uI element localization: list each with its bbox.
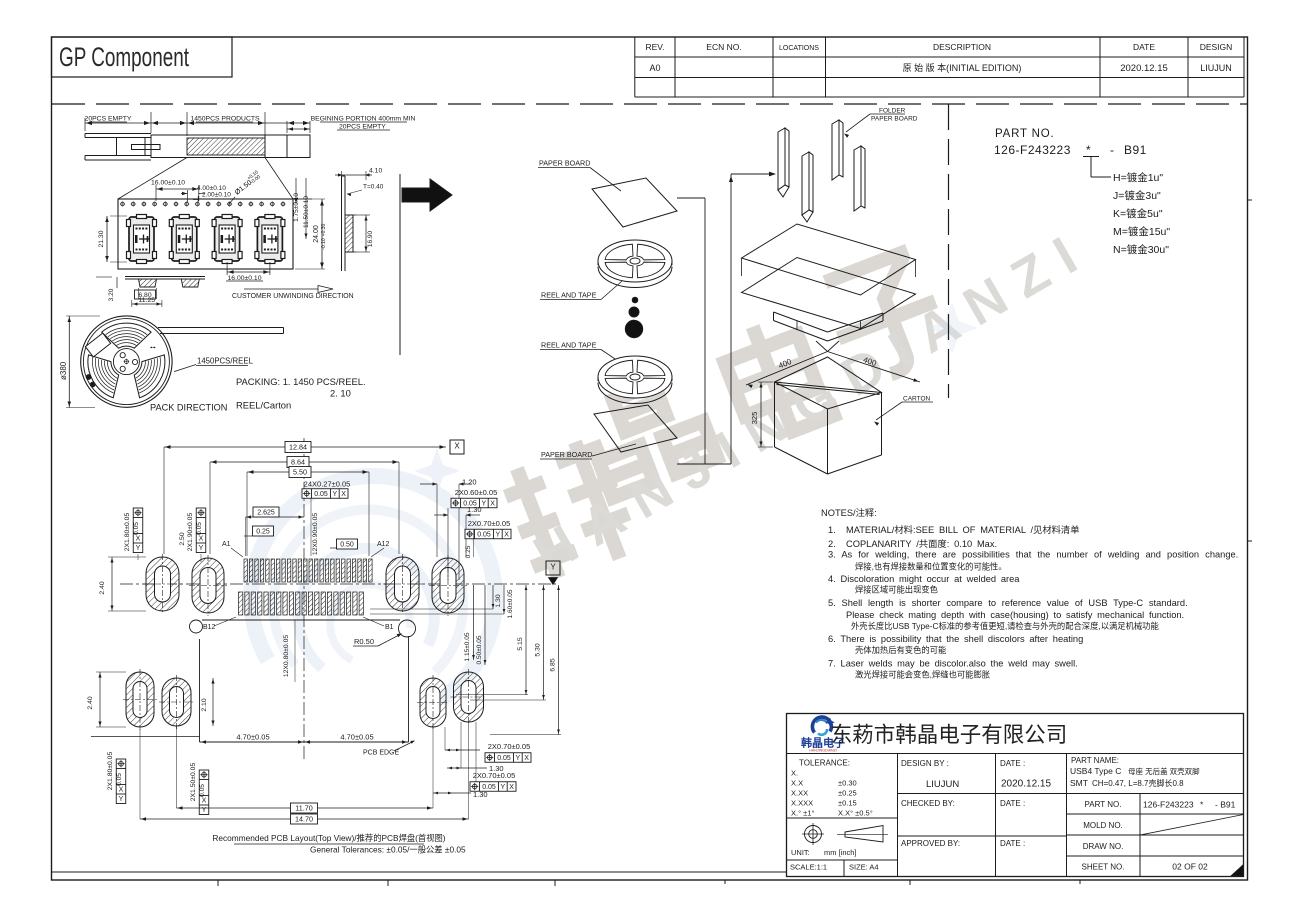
svg-text:0.05: 0.05 [133,522,140,535]
svg-text:2X1.50±0.05: 2X1.50±0.05 [190,763,197,802]
svg-text:126-F243223: 126-F243223 [1143,800,1194,810]
svg-text:SMT: SMT [1070,778,1088,788]
svg-text:*: * [1086,143,1091,157]
svg-text:X.: X. [791,769,798,778]
svg-text:2X1.90±0.05: 2X1.90±0.05 [187,513,194,552]
svg-text:REEL AND TAPE: REEL AND TAPE [541,341,597,350]
svg-text:CARTON: CARTON [903,396,931,403]
svg-text:外壳长度比USB Type-C标准的参考值更短,请检查与外壳: 外壳长度比USB Type-C标准的参考值更短,请检查与外壳的配合深度,以满足机… [851,621,1159,631]
svg-text:MOLD NO.: MOLD NO. [1083,821,1123,830]
svg-text:2020.12.15: 2020.12.15 [1001,779,1051,790]
svg-text:焊接,也有焊接数量和位置变化的可能性。: 焊接,也有焊接数量和位置变化的可能性。 [855,562,1007,572]
svg-text:325: 325 [750,412,759,425]
svg-text:-0.10: -0.10 [321,238,327,250]
svg-text:3. As for welding, there are p: 3. As for welding, there are possibiliti… [828,550,1238,560]
svg-text:X: X [199,536,204,543]
svg-text:4. Discoloration might occur a: 4. Discoloration might occur at welded a… [828,574,1020,584]
svg-text:6.85: 6.85 [550,658,557,671]
svg-text:X.° ±1°: X.° ±1° [791,809,814,818]
svg-text:0.05: 0.05 [199,784,206,797]
svg-text:6. There is possibility that t: 6. There is possibility that the shell d… [828,634,1083,644]
svg-text:5.30: 5.30 [535,643,542,656]
svg-text:12X0.90±0.05: 12X0.90±0.05 [312,513,319,556]
svg-text:126-F243223: 126-F243223 [994,143,1071,157]
svg-text:Y: Y [136,545,141,552]
svg-text:2.625: 2.625 [257,510,275,517]
svg-text:0.05: 0.05 [314,491,328,498]
svg-text:12.84: 12.84 [289,443,307,452]
svg-text:PART NO.: PART NO. [1085,800,1122,809]
svg-text:Y: Y [550,563,556,572]
svg-text:SHEET NO.: SHEET NO. [1082,863,1125,872]
svg-text:LIUJUN: LIUJUN [1200,63,1232,73]
svg-text:Y: Y [495,532,500,539]
svg-text:±0.30: ±0.30 [838,779,857,788]
svg-text:0.05: 0.05 [477,532,491,539]
svg-text:壳体加热后有变色的可能: 壳体加热后有变色的可能 [855,645,946,655]
svg-text:SIZE: A4: SIZE: A4 [849,863,879,872]
svg-text:X: X [119,787,124,794]
svg-text:X: X [524,755,529,762]
svg-text:1450PCS/REEL: 1450PCS/REEL [197,357,254,366]
svg-text:APPROVED BY:: APPROVED BY: [901,839,960,848]
svg-text:Y: Y [515,755,520,762]
svg-text:DESIGN BY :: DESIGN BY : [901,759,949,768]
svg-text:ECN NO.: ECN NO. [706,42,741,52]
svg-text:激光焊接可能会变色,焊缝也可能膨胀: 激光焊接可能会变色,焊缝也可能膨胀 [855,670,990,680]
svg-text:4.70±0.05: 4.70±0.05 [236,733,269,742]
svg-text:2.50: 2.50 [179,532,186,545]
svg-text:Recommended PCB Layout(Top: Recommended PCB Layout(Top View)/推荐的PCB焊… [212,833,445,843]
svg-text:PAPER BOARD: PAPER BOARD [871,116,918,123]
svg-text:11.25: 11.25 [139,297,156,304]
svg-text:FOLDER: FOLDER [879,108,906,115]
svg-text:A1: A1 [222,541,231,548]
svg-text:1.20: 1.20 [462,478,477,487]
svg-text:Please check mating depth with: Please check mating depth with case(hous… [846,610,1184,620]
svg-text:X: X [490,501,495,508]
svg-text:12X0.80±0.05: 12X0.80±0.05 [283,635,290,678]
svg-text:0.05: 0.05 [497,755,511,762]
svg-text:14.70: 14.70 [295,815,313,824]
svg-text:5.15: 5.15 [517,637,524,650]
svg-text:B1: B1 [385,624,394,631]
svg-text:2.40: 2.40 [87,696,94,709]
svg-text:CUSTOMER UNWINDING DIRECTION: CUSTOMER UNWINDING DIRECTION [232,293,354,300]
svg-text:DRAW NO.: DRAW NO. [1083,842,1124,851]
svg-text:0.25: 0.25 [256,529,270,536]
svg-text:ø380: ø380 [59,361,68,380]
svg-text:东菞市韩晶电子有限公司: 东菞市韩晶电子有限公司 [831,723,1068,747]
svg-text:2. 10: 2. 10 [330,388,351,399]
svg-text:0.05: 0.05 [196,522,203,535]
svg-text:CH=0.47, L=8.7壳脚长0.8: CH=0.47, L=8.7壳脚长0.8 [1092,778,1184,788]
svg-text:1.75±0.10: 1.75±0.10 [293,193,300,222]
svg-text:X: X [136,536,141,543]
svg-text:X: X [202,798,207,805]
svg-text:1.60±0.05: 1.60±0.05 [507,589,514,618]
svg-text:R0.50: R0.50 [354,637,374,646]
svg-text:Y: Y [332,491,337,498]
svg-text:A0: A0 [649,63,660,73]
svg-text:5.50: 5.50 [293,468,307,477]
svg-text:HANJINGDIANZI: HANJINGDIANZI [809,749,837,753]
svg-text:0.25: 0.25 [465,545,472,558]
svg-text:X: X [341,491,346,498]
svg-text:4.10: 4.10 [369,168,382,175]
svg-text:UNIT:: UNIT: [791,848,810,857]
svg-text:COPLANARITY /共面度: 0.10 Max.: COPLANARITY /共面度: 0.10 Max. [846,538,997,549]
svg-text:PCB EDGE: PCB EDGE [363,750,400,757]
svg-text:0.05: 0.05 [116,773,123,786]
svg-text:N=镀金30u": N=镀金30u" [1113,243,1169,256]
svg-text:2X0.60±0.05: 2X0.60±0.05 [455,488,497,497]
svg-text:DESCRIPTION: DESCRIPTION [933,42,991,52]
svg-text:2X1.80±0.05: 2X1.80±0.05 [107,752,114,791]
svg-text:11.70: 11.70 [295,804,312,813]
svg-text:16.00±0.10: 16.00±0.10 [151,180,185,187]
svg-text:LIUJUN: LIUJUN [926,779,959,790]
svg-text:2020.12.15: 2020.12.15 [1120,63,1168,74]
svg-text:mm [inch]: mm [inch] [824,848,857,857]
svg-text:-: - [1110,143,1114,157]
svg-text:K=镀金5u": K=镀金5u" [1113,207,1163,220]
svg-text:CHECKED BY:: CHECKED BY: [901,799,955,808]
svg-text:1450PCS PRODUCTS: 1450PCS PRODUCTS [190,116,260,123]
svg-text:PAPER BOARD: PAPER BOARD [541,450,592,459]
svg-text:Y: Y [199,545,204,552]
svg-text:2X0.70±0.05: 2X0.70±0.05 [488,742,530,751]
svg-text:1.30: 1.30 [467,505,482,514]
svg-text:24.00: 24.00 [313,225,320,243]
svg-text:PART NAME:: PART NAME: [1071,756,1119,765]
svg-text:7. Laser welds may be discolor: 7. Laser welds may be discolor.also the … [828,659,1078,669]
svg-text:1.15±0.05: 1.15±0.05 [464,632,471,661]
svg-text:DATE :: DATE : [1000,839,1025,848]
svg-text:M=镀金15u": M=镀金15u" [1113,225,1170,238]
svg-text:PART NO.: PART NO. [995,128,1054,140]
svg-text:1.30: 1.30 [495,594,502,607]
svg-text:X: X [504,532,509,539]
svg-text:REV.: REV. [645,42,664,52]
svg-text:⌖⌖: ⌖⌖ [150,345,156,351]
svg-text:20PCS EMPTY: 20PCS EMPTY [339,124,386,131]
svg-text:0.50: 0.50 [340,542,354,549]
svg-text:11.50±0.10: 11.50±0.10 [303,196,310,228]
svg-text:A12: A12 [377,541,390,548]
svg-text:DESIGN: DESIGN [1200,42,1233,52]
svg-text:BEGINING PORTION 400mm MIN: BEGINING PORTION 400mm MIN [311,116,416,123]
svg-text:±0.25: ±0.25 [838,789,857,798]
svg-text:0.50±0.05: 0.50±0.05 [476,635,483,664]
svg-text:4.70±0.05: 4.70±0.05 [340,733,373,742]
svg-text:2X1.80±0.05: 2X1.80±0.05 [124,513,131,552]
svg-text:MATERIAL/材料:SEE BILL OF MATERI: MATERIAL/材料:SEE BILL OF MATERIAL /见材料清单 [846,524,1080,535]
svg-text:T=0.40: T=0.40 [363,184,384,191]
svg-text:DATE :: DATE : [1000,759,1025,768]
svg-text:X: X [454,442,460,451]
svg-text:5. Shell length is shorter com: 5. Shell length is shorter compare to re… [828,598,1188,608]
svg-text:X.XX: X.XX [791,789,808,798]
svg-text:Y: Y [119,796,124,803]
svg-text:B12: B12 [203,624,216,631]
svg-text:1.: 1. [828,525,836,535]
svg-text:PACK DIRECTION: PACK DIRECTION [150,403,227,413]
svg-text:J=镀金3u": J=镀金3u" [1113,189,1161,202]
svg-text:2.: 2. [828,539,836,549]
svg-text:8.64: 8.64 [291,458,305,467]
svg-text:24X0.27±0.05: 24X0.27±0.05 [304,480,351,489]
svg-text:SCALE:1:1: SCALE:1:1 [790,863,827,872]
svg-text:X.X° ±0.5°: X.X° ±0.5° [838,809,873,818]
svg-text:02 OF 02: 02 OF 02 [1172,862,1208,872]
svg-text:±0.15: ±0.15 [838,799,857,808]
svg-text:PAPER BOARD: PAPER BOARD [539,159,590,168]
svg-text:REEL/Carton: REEL/Carton [236,400,291,411]
svg-text:2.40: 2.40 [99,581,106,594]
svg-text:DATE: DATE [1133,42,1155,52]
svg-text:2X0.70±0.05: 2X0.70±0.05 [473,771,515,780]
svg-text:3.20: 3.20 [108,288,115,301]
svg-text:X: X [509,784,514,791]
svg-text:LOCATIONS: LOCATIONS [779,45,819,52]
svg-text:PACKING: 1. 1450 PCS/REEL.: PACKING: 1. 1450 PCS/REEL. [236,376,366,387]
svg-text:原 始 版 本(INITIAL EDITION): 原 始 版 本(INITIAL EDITION) [903,62,1022,73]
svg-text:16.90: 16.90 [367,230,374,247]
svg-text:DATE :: DATE : [1000,799,1025,808]
svg-text:GP Component: GP Component [59,42,189,72]
svg-text:+0.30: +0.30 [321,223,327,236]
svg-text:- B91: - B91 [1215,800,1236,810]
svg-text:21.30: 21.30 [98,230,105,247]
svg-text:TOLERANCE:: TOLERANCE: [799,759,850,768]
svg-text:1.30: 1.30 [473,790,488,799]
svg-text:NOTES/注释:: NOTES/注释: [821,507,877,518]
svg-text:X.X: X.X [791,779,803,788]
svg-text:H=镀金1u": H=镀金1u" [1113,171,1163,184]
svg-text:焊接区域可能出现变色: 焊接区域可能出现变色 [855,585,938,595]
svg-text:General Tolerances: ±0.05/一般公: General Tolerances: ±0.05/一般公差 ±0.05 [310,845,466,855]
svg-text:2.10: 2.10 [201,698,208,711]
svg-text:2X0.70±0.05: 2X0.70±0.05 [468,519,510,528]
svg-text:REEL AND TAPE: REEL AND TAPE [541,291,597,300]
svg-text:母座 无后盖 双壳双脚: 母座 无后盖 双壳双脚 [1128,766,1200,776]
svg-text:USB4 Type C: USB4 Type C [1070,766,1121,776]
svg-text:Y: Y [481,501,486,508]
svg-text:B91: B91 [1124,143,1147,157]
svg-text:20PCS EMPTY: 20PCS EMPTY [85,116,132,123]
svg-text:X.XXX: X.XXX [791,799,813,808]
svg-text:Y: Y [500,784,505,791]
svg-text:2.00±0.10: 2.00±0.10 [202,192,231,199]
